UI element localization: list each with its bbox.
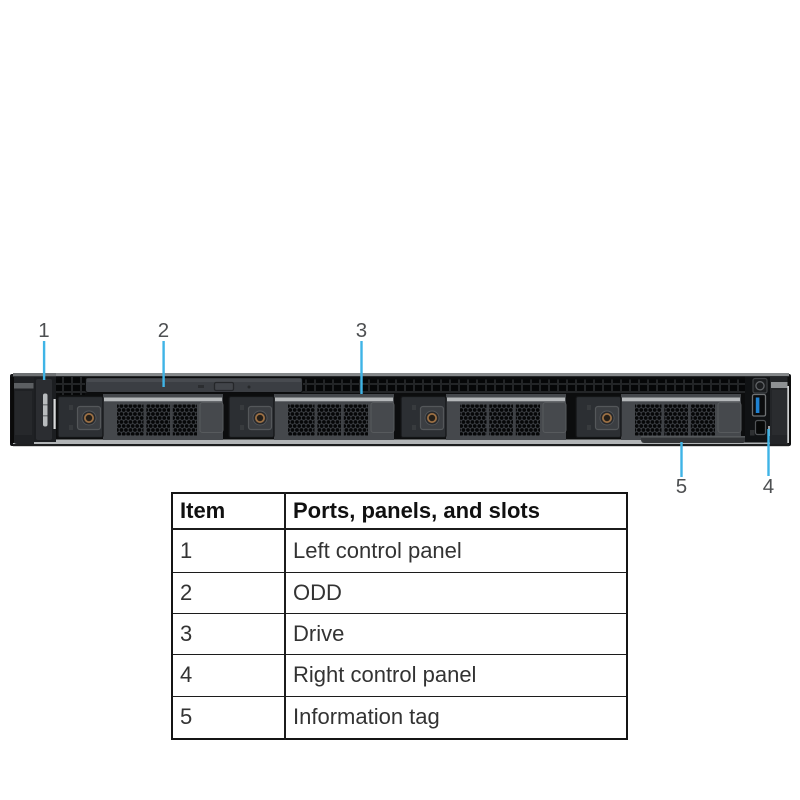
svg-text:5: 5 <box>676 475 687 498</box>
svg-text:3: 3 <box>356 319 367 342</box>
svg-text:4: 4 <box>763 475 774 498</box>
svg-text:1: 1 <box>38 319 49 342</box>
svg-text:2: 2 <box>158 319 169 342</box>
